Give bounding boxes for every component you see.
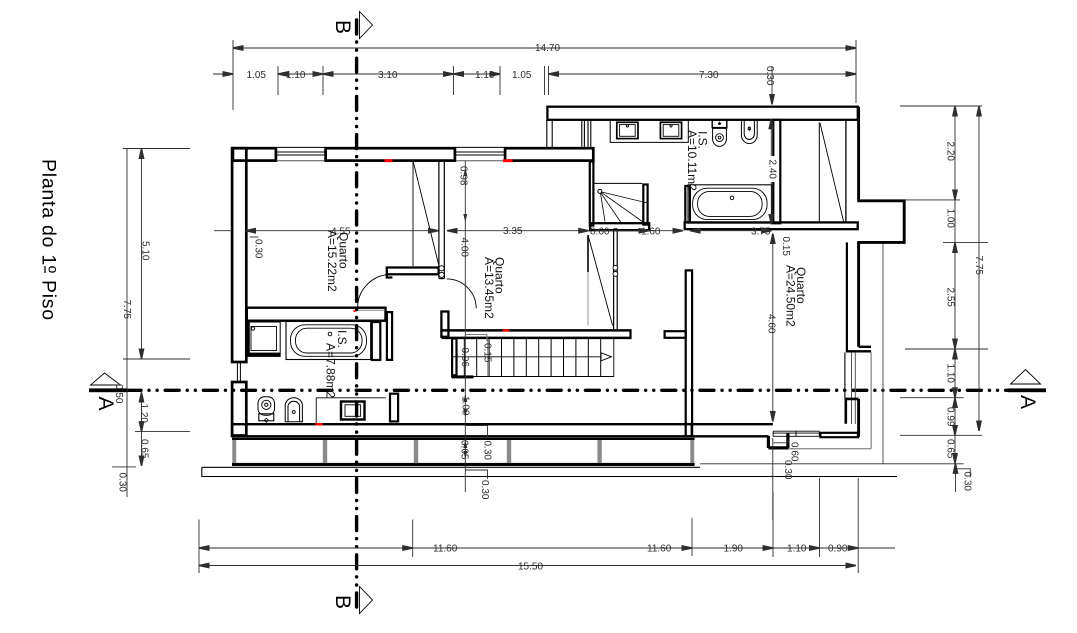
svg-text:0.96: 0.96	[459, 348, 470, 368]
svg-text:4.00: 4.00	[459, 238, 470, 258]
svg-text:B: B	[331, 20, 354, 34]
svg-text:A=15.22m2: A=15.22m2	[325, 230, 339, 292]
svg-text:0.65: 0.65	[139, 439, 150, 459]
svg-text:0.30: 0.30	[764, 66, 775, 86]
svg-text:0.65: 0.65	[945, 439, 956, 459]
svg-text:2.20: 2.20	[945, 142, 956, 162]
svg-text:0.65: 0.65	[459, 440, 470, 460]
svg-text:1.10: 1.10	[787, 544, 807, 555]
svg-text:A=13.45m2: A=13.45m2	[482, 257, 496, 319]
svg-text:11.60: 11.60	[647, 544, 672, 555]
svg-text:7.75: 7.75	[973, 256, 984, 276]
svg-text:0.98: 0.98	[458, 166, 469, 186]
svg-text:0.90: 0.90	[828, 544, 848, 555]
svg-text:3.35: 3.35	[503, 226, 523, 237]
svg-text:Planta do 1º Piso: Planta do 1º Piso	[38, 159, 60, 321]
svg-text:1.05: 1.05	[247, 70, 267, 81]
svg-text:A: A	[1016, 395, 1039, 409]
svg-text:4.60: 4.60	[765, 314, 776, 334]
svg-text:A=10.11m2: A=10.11m2	[685, 130, 699, 191]
svg-text:14.70: 14.70	[535, 43, 560, 54]
svg-text:3.10: 3.10	[378, 70, 398, 81]
svg-text:1.10: 1.10	[475, 70, 495, 81]
svg-text:0.50: 0.50	[113, 384, 124, 404]
svg-text:0.99: 0.99	[945, 407, 956, 427]
svg-text:1.10: 1.10	[945, 364, 956, 384]
svg-text:0.30: 0.30	[782, 460, 793, 480]
svg-text:B: B	[331, 595, 354, 609]
svg-text:0.15: 0.15	[482, 343, 493, 363]
svg-text:0.30: 0.30	[117, 473, 128, 493]
svg-text:1.00: 1.00	[945, 209, 956, 229]
svg-text:0.30: 0.30	[253, 239, 264, 259]
svg-text:11.60: 11.60	[433, 544, 458, 555]
svg-text:A=7.88m2: A=7.88m2	[324, 343, 338, 398]
svg-text:1.10: 1.10	[286, 70, 306, 81]
svg-text:1.05: 1.05	[512, 70, 532, 81]
svg-text:2.40: 2.40	[766, 160, 777, 180]
svg-text:0.60: 0.60	[590, 227, 610, 238]
svg-text:0.60: 0.60	[788, 442, 799, 462]
svg-text:2.55: 2.55	[945, 288, 956, 308]
svg-text:15.50: 15.50	[518, 562, 543, 573]
svg-text:3.75: 3.75	[751, 227, 771, 238]
svg-text:1.60: 1.60	[641, 227, 661, 238]
svg-text:0.15: 0.15	[780, 237, 791, 257]
svg-text:7.75: 7.75	[121, 300, 132, 320]
svg-text:A=24.50m2: A=24.50m2	[784, 265, 798, 327]
svg-text:0.30: 0.30	[479, 480, 490, 500]
svg-text:1.09: 1.09	[460, 396, 471, 416]
svg-text:0.30: 0.30	[962, 472, 973, 492]
svg-text:1.90: 1.90	[724, 544, 744, 555]
svg-text:0.30: 0.30	[482, 441, 493, 461]
svg-text:1.20: 1.20	[138, 404, 149, 424]
svg-text:7.30: 7.30	[699, 70, 719, 81]
svg-text:5.10: 5.10	[139, 241, 150, 261]
